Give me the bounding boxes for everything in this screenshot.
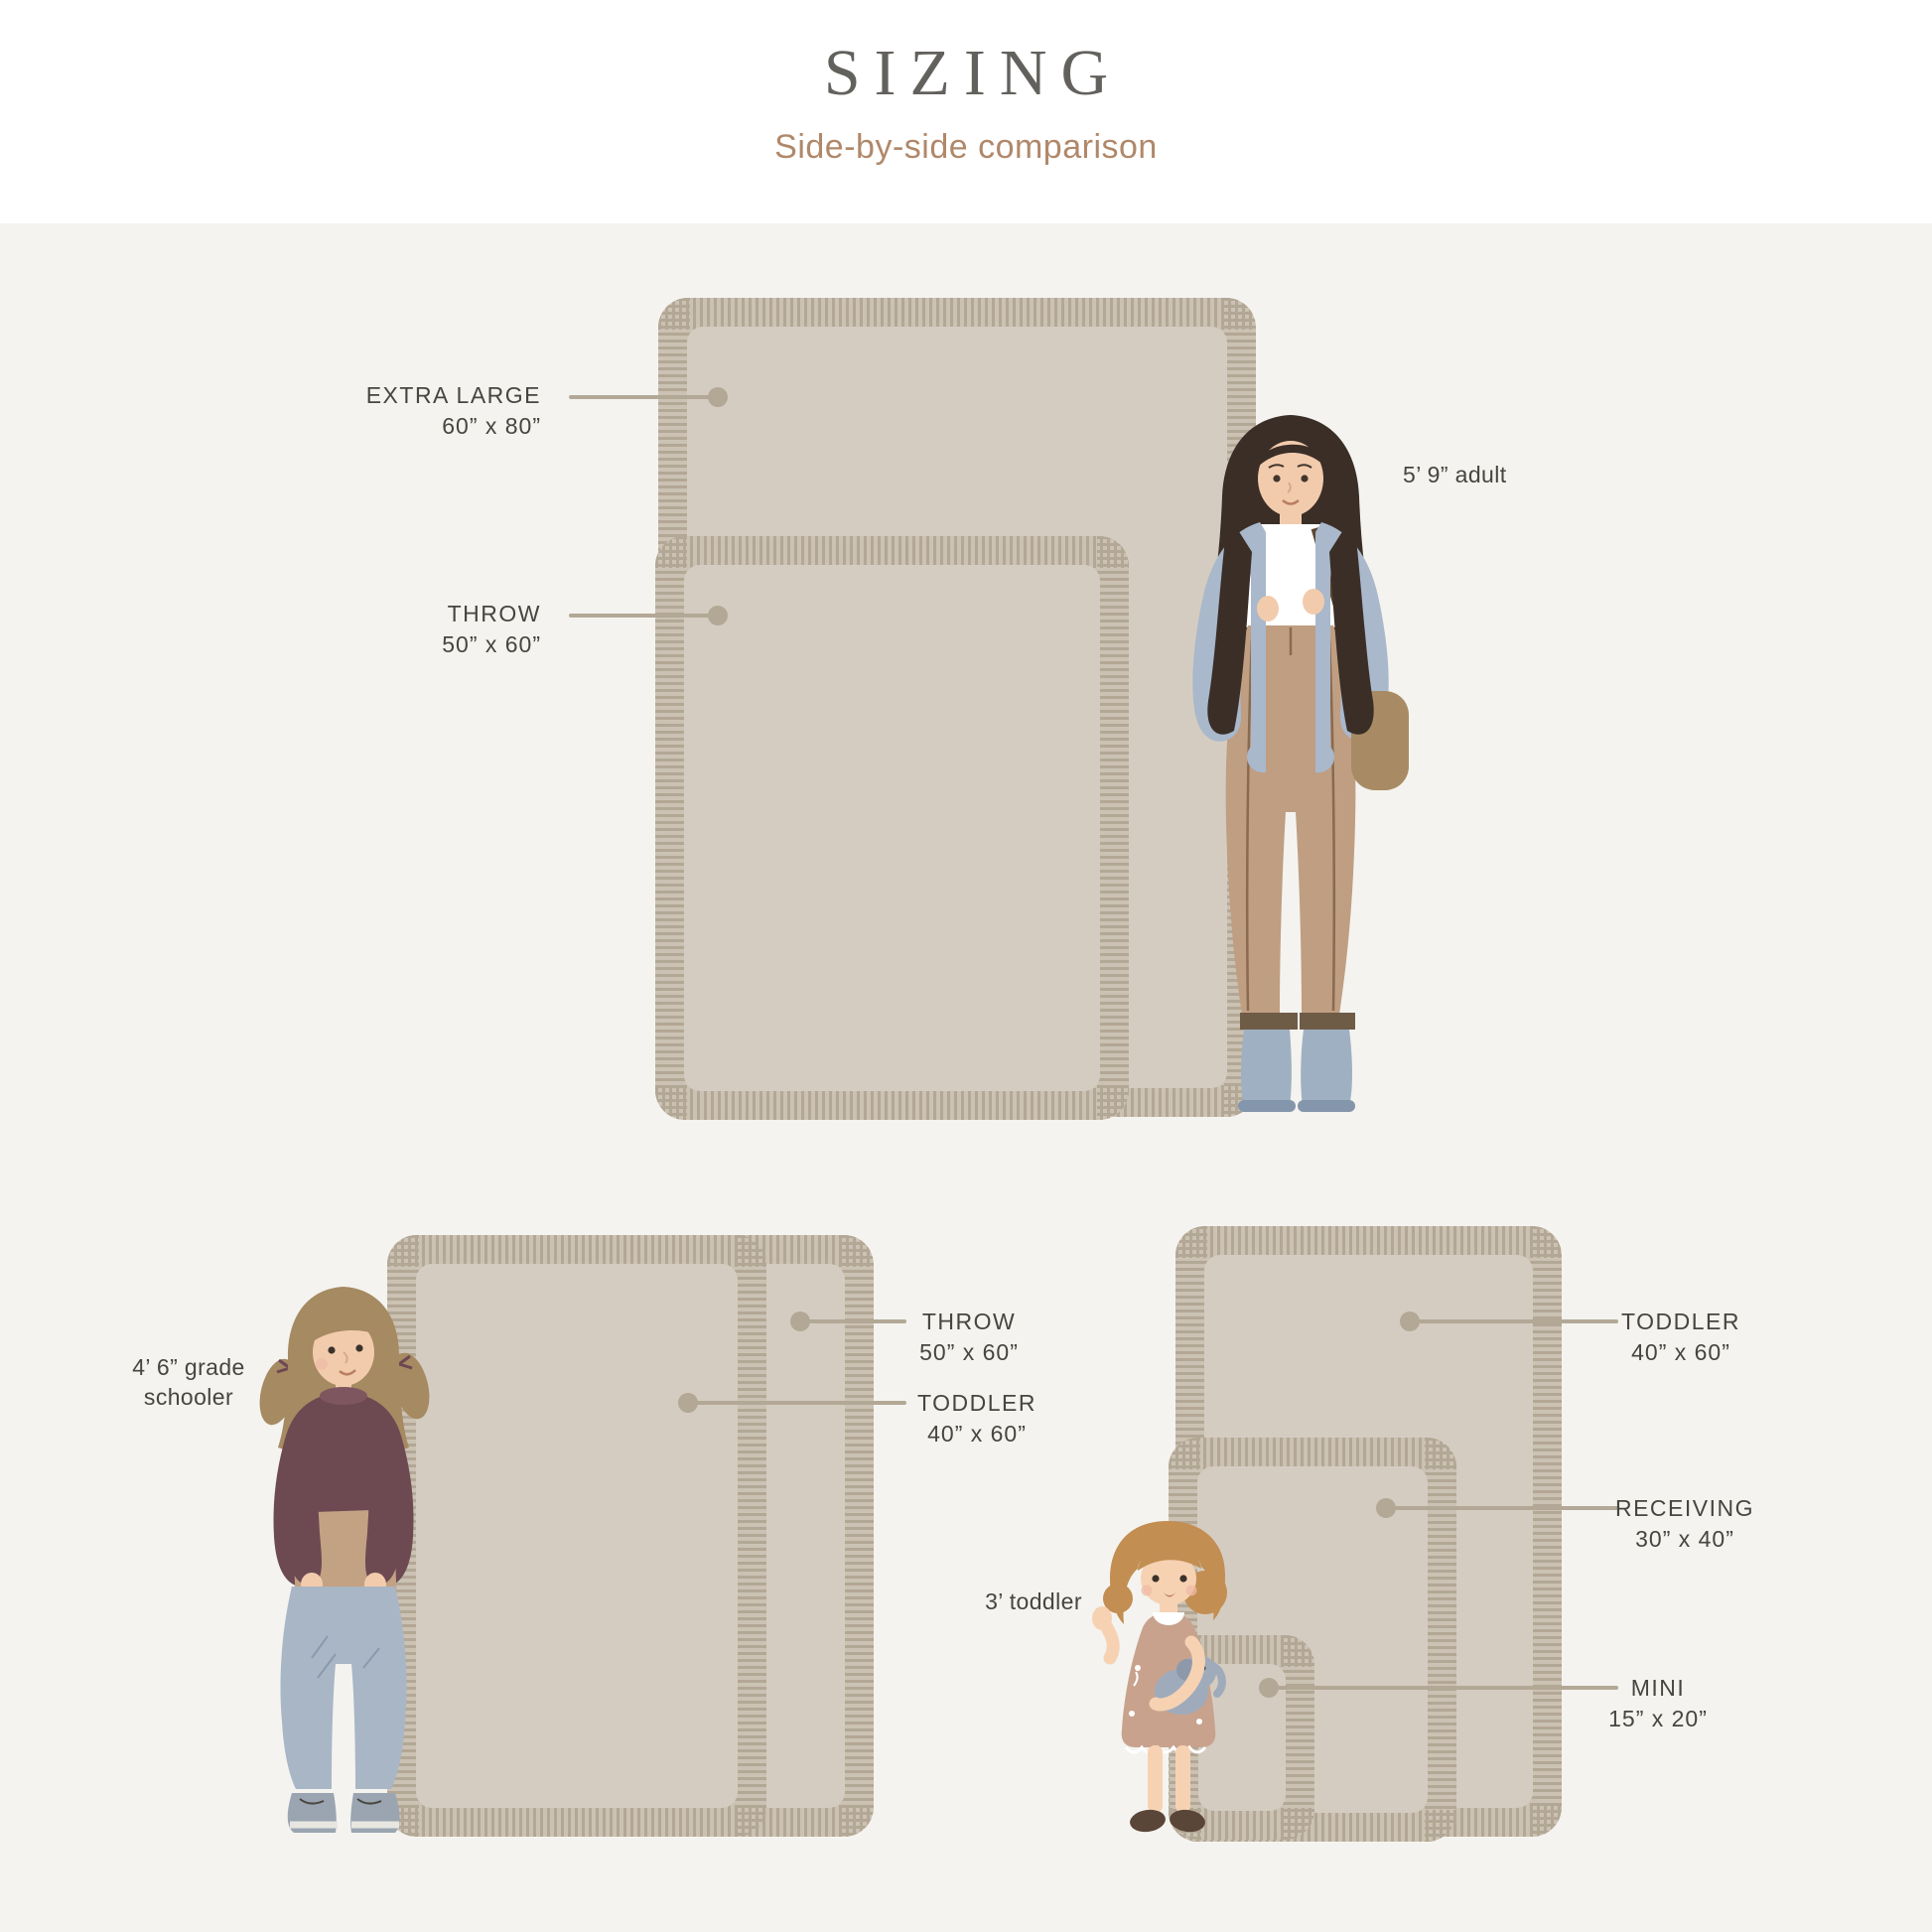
shoe-left xyxy=(1129,1808,1168,1835)
pants xyxy=(280,1587,406,1789)
blanket-name: THROW xyxy=(870,1307,1068,1337)
blanket-body xyxy=(684,565,1100,1091)
eye-right xyxy=(1301,475,1308,482)
dress-flower xyxy=(1196,1719,1202,1725)
blanket-size: 50” x 60” xyxy=(243,629,541,660)
fringe-top xyxy=(658,298,1256,330)
toddler-illustration xyxy=(1072,1517,1246,1839)
fringe-bottom xyxy=(655,1088,1129,1120)
blush-left xyxy=(1142,1586,1153,1596)
label-throw-bottom-left: THROW 50” x 60” xyxy=(870,1307,1068,1368)
leader-dot xyxy=(708,387,728,407)
label-receiving: RECEIVING 30” x 40” xyxy=(1586,1493,1784,1555)
header: SIZING Side-by-side comparison xyxy=(0,0,1932,223)
eye-right xyxy=(355,1344,362,1351)
page-subtitle: Side-by-side comparison xyxy=(0,127,1932,167)
eye-left xyxy=(1273,475,1280,482)
eye-left xyxy=(328,1346,335,1353)
fringe-right xyxy=(1425,1438,1456,1842)
fringe-top xyxy=(1175,1226,1562,1258)
blanket-name: MINI xyxy=(1559,1673,1757,1704)
label-throw-top: THROW 50” x 60” xyxy=(243,599,541,660)
sweater-collar xyxy=(320,1387,367,1405)
adult-illustration xyxy=(1157,405,1425,1137)
boot-left xyxy=(1241,1030,1292,1106)
toddler-figure xyxy=(1072,1517,1246,1839)
leader-dot xyxy=(790,1311,810,1331)
leader-dot xyxy=(1400,1311,1420,1331)
elephant-trunk xyxy=(1213,1666,1222,1694)
leader-extra-large xyxy=(569,395,718,399)
leg-left xyxy=(1148,1745,1163,1813)
dress-flower xyxy=(1135,1665,1141,1671)
fringe-top xyxy=(387,1235,766,1267)
fringe-top xyxy=(1169,1438,1456,1469)
label-toddler-bottom-left: TODDLER 40” x 60” xyxy=(878,1388,1076,1449)
blanket-body xyxy=(416,1264,738,1808)
blanket-size: 40” x 60” xyxy=(1582,1337,1780,1368)
label-toddler-height: 3’ toddler xyxy=(934,1587,1133,1615)
label-toddler-bottom-right: TODDLER 40” x 60” xyxy=(1582,1307,1780,1368)
page-title: SIZING xyxy=(0,38,1932,109)
blanket-size: 50” x 60” xyxy=(870,1337,1068,1368)
cuff-right xyxy=(1300,1013,1355,1030)
blanket-name: EXTRA LARGE xyxy=(243,380,541,411)
blanket-name: THROW xyxy=(243,599,541,629)
label-adult-height: 5’ 9” adult xyxy=(1403,461,1507,488)
leg-right xyxy=(1175,1745,1190,1813)
fringe-right xyxy=(1283,1635,1314,1840)
label-line-1: 4’ 6” grade xyxy=(84,1352,293,1382)
label-mini: MINI 15” x 20” xyxy=(1559,1673,1757,1734)
fringe-left xyxy=(655,536,687,1120)
fringe-right xyxy=(1097,536,1129,1120)
fringe-right xyxy=(735,1235,766,1837)
blush-right xyxy=(1186,1586,1197,1596)
leader-dot xyxy=(678,1393,698,1413)
sizing-infographic: SIZING Side-by-side comparison xyxy=(0,0,1932,1932)
blanket-size: 40” x 60” xyxy=(878,1419,1076,1449)
blanket-name: RECEIVING xyxy=(1586,1493,1784,1524)
blanket-size: 30” x 40” xyxy=(1586,1524,1784,1555)
eye-left xyxy=(1152,1575,1159,1582)
blanket-toddler-bottom-left xyxy=(387,1235,766,1837)
leader-dot xyxy=(1376,1498,1396,1518)
cuff-left xyxy=(1240,1013,1298,1030)
dress-flower xyxy=(1129,1711,1135,1717)
sole-right xyxy=(1298,1100,1355,1112)
label-grade-schooler-height: 4’ 6” grade schooler xyxy=(84,1352,293,1412)
leader-dot xyxy=(708,606,728,625)
leader-throw-top xyxy=(569,614,718,618)
fringe-bottom xyxy=(387,1805,766,1837)
fringe-right xyxy=(1530,1226,1562,1837)
leader-receiving xyxy=(1386,1506,1618,1510)
boot-right xyxy=(1301,1030,1352,1106)
fringe-top xyxy=(655,536,1129,568)
shoe-right xyxy=(1169,1808,1207,1835)
adult-figure xyxy=(1157,405,1425,1137)
blanket-throw-top xyxy=(655,536,1129,1120)
blanket-size: 60” x 80” xyxy=(243,411,541,442)
hem-scallops xyxy=(1126,1747,1205,1752)
leader-toddler-bottom-left xyxy=(688,1401,906,1405)
leader-dot xyxy=(1259,1678,1279,1698)
label-line-2: schooler xyxy=(84,1382,293,1412)
sole-left xyxy=(1238,1100,1296,1112)
blanket-name: TODDLER xyxy=(878,1388,1076,1419)
blush-left xyxy=(316,1358,328,1370)
eye-right xyxy=(1179,1575,1186,1582)
pants xyxy=(1226,625,1356,1015)
blanket-size: 15” x 20” xyxy=(1559,1704,1757,1734)
label-extra-large: EXTRA LARGE 60” x 80” xyxy=(243,380,541,442)
hand-right xyxy=(1303,589,1324,615)
hand-left xyxy=(1257,596,1279,621)
blanket-name: TODDLER xyxy=(1582,1307,1780,1337)
